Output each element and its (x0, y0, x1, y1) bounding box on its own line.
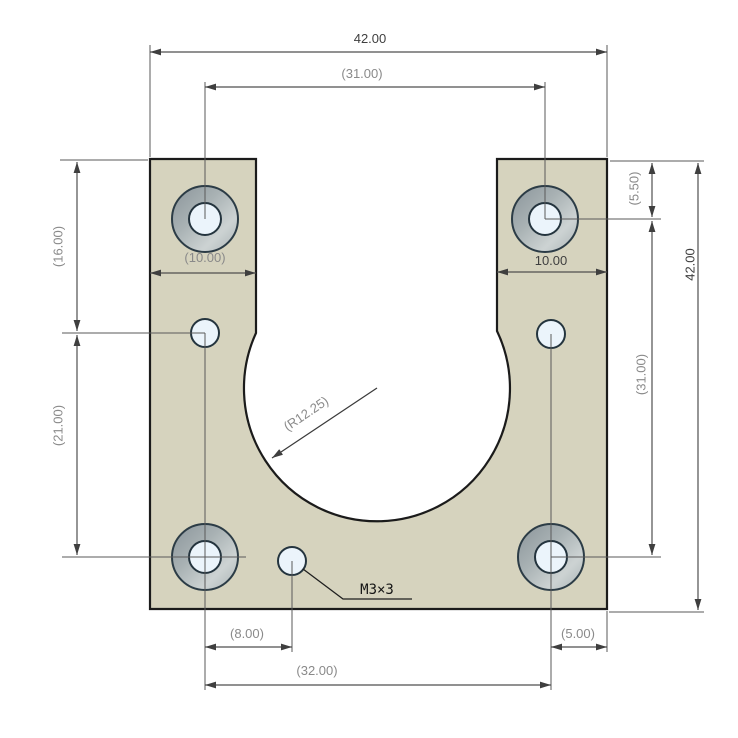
drawing-geometry (0, 0, 738, 738)
radius-leader-line (272, 388, 377, 458)
drawing-canvas: 42.00 (31.00) (10.00) 10.00 (5.50) 42.00… (0, 0, 738, 738)
